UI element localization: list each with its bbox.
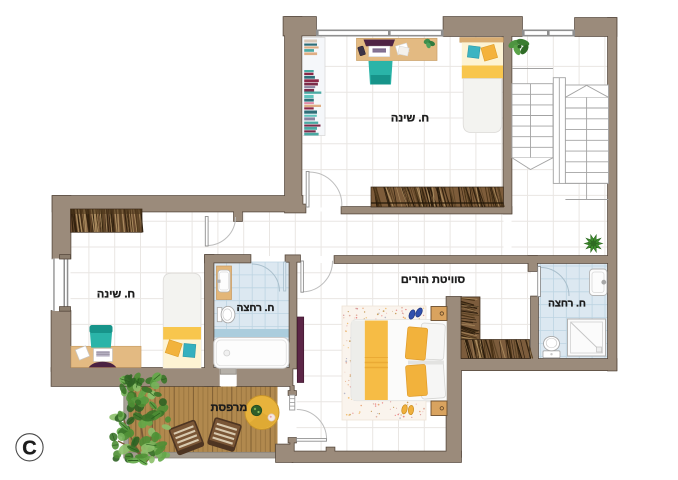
svg-text:סוויטת הורים: סוויטת הורים: [401, 274, 466, 286]
svg-text:C: C: [22, 438, 36, 460]
svg-text:מרפסת: מרפסת: [211, 402, 248, 414]
svg-text:ח. שינה: ח. שינה: [391, 113, 429, 125]
svg-text:ח. רחצה: ח. רחצה: [548, 299, 586, 310]
svg-text:ח. שינה: ח. שינה: [97, 289, 135, 301]
svg-text:ח. רחצה: ח. רחצה: [237, 303, 275, 314]
